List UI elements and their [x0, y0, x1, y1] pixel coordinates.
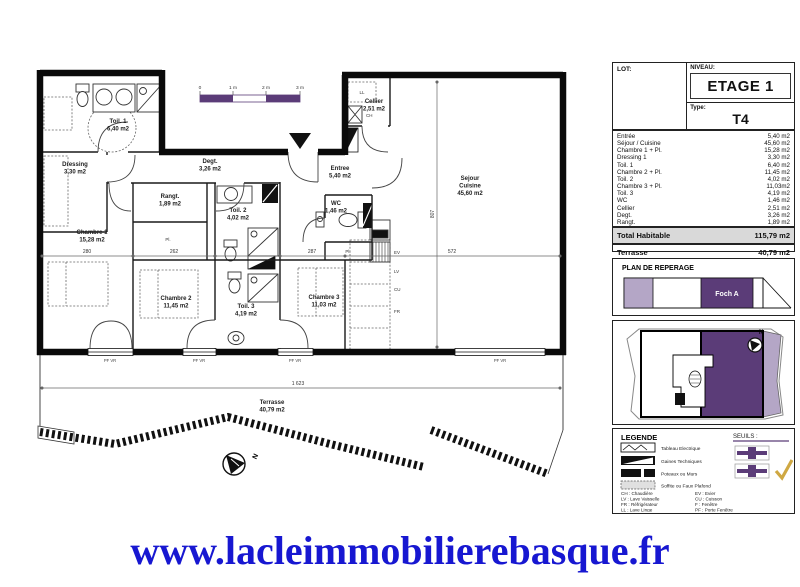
total-label: Total Habitable	[617, 231, 670, 240]
toilet-tank-toil2	[224, 240, 237, 247]
room-row: Rangt.1,89 m2	[617, 219, 790, 226]
label-pfvr-1: PF VR	[104, 358, 116, 363]
room-label-wc: WC	[331, 201, 342, 207]
room-area: 6,40 m2	[768, 162, 790, 169]
abbr-right-0: EV : Evier	[695, 491, 716, 496]
room-row: Dressing 13,30 m2	[617, 154, 790, 161]
abbr-left-2: FR : Réfrigérateur	[621, 502, 658, 507]
site-minimap-panel: N	[612, 320, 795, 425]
legende-abbreviations: CH : Chaudière LV : Lave Vaisselle FR : …	[621, 491, 733, 512]
toilet-toil1	[77, 92, 88, 107]
room-label-degt: Degt.	[203, 159, 218, 165]
room-name: Toil. 2	[617, 176, 633, 183]
room-area: 4,19 m2	[768, 190, 790, 197]
legende-title: LEGENDE	[621, 433, 657, 442]
abbr-left-1: LV : Lave Vaisselle	[621, 497, 660, 502]
room-row: Toil. 24,02 m2	[617, 176, 790, 183]
room-name: Dressing 1	[617, 154, 647, 161]
room-area-rangt: 1,89 m2	[159, 202, 182, 208]
dim-287: 287	[308, 249, 317, 255]
north-compass: N	[223, 452, 259, 475]
niveau-label: NIVEAU:	[690, 65, 715, 71]
room-area: 11,45 m2	[765, 169, 790, 176]
poteaux-murs-icon	[621, 469, 641, 477]
legende-panel: LEGENDE SEUILS : Tableau Electrique Gain…	[612, 428, 795, 514]
room-area: 3,30 m2	[768, 154, 790, 161]
room-area: 1,46 m2	[768, 197, 790, 204]
total-value: 115,79 m2	[755, 231, 790, 240]
room-name: Entrée	[617, 133, 635, 140]
lot-info-panel: LOT: NIVEAU: ETAGE 1 Type: T4 Entrée5,40…	[612, 62, 795, 252]
site-minimap-svg: N	[613, 321, 793, 423]
scale-bar: 0 1 m 2 m 3 m	[199, 85, 304, 102]
seuils-title: SEUILS :	[733, 434, 758, 440]
room-area: 5,40 m2	[768, 133, 790, 140]
room-area-chambre1: 15,28 m2	[79, 238, 105, 244]
label-ev: EV	[394, 250, 400, 255]
plan-de-reperage-panel: PLAN DE REPERAGE Foch A	[612, 258, 795, 316]
room-area-toil2: 4,02 m2	[227, 216, 250, 222]
room-row: Cellier2,51 m2	[617, 205, 790, 212]
type-cell: Type: T4	[687, 103, 794, 129]
room-name: Séjour / Cuisine	[617, 140, 661, 147]
room-name: WC	[617, 197, 627, 204]
abbr-right-2: F : Fenêtre	[695, 502, 718, 507]
room-label-toil2: Toil. 2	[230, 208, 248, 214]
room-label-chambre3: Chambre 3	[308, 295, 340, 301]
outer-walls	[37, 70, 566, 355]
toilet-toil3	[229, 279, 240, 293]
room-area-cellier: 2,51 m2	[363, 107, 386, 113]
abbr-right-1: CU : Cuisson	[695, 497, 723, 502]
toilet-tank-toil3	[228, 272, 241, 279]
label-fr: FR	[394, 309, 401, 314]
soffite-icon	[621, 481, 655, 489]
reperage-title: PLAN DE REPERAGE	[622, 265, 694, 272]
room-row: Chambre 1 + Pl.15,28 m2	[617, 147, 790, 154]
room-row: Toil. 16,40 m2	[617, 162, 790, 169]
scale-1m: 1 m	[229, 85, 237, 91]
legende-svg: LEGENDE SEUILS : Tableau Electrique Gain…	[613, 429, 793, 512]
legende-item-3: Soffite ou Faux Plafond	[661, 484, 711, 490]
scale-0: 0	[199, 85, 202, 91]
room-area-degt: 3,26 m2	[199, 167, 222, 173]
room-name: Chambre 1 + Pl.	[617, 147, 662, 154]
room-row: Chambre 2 + Pl.11,45 m2	[617, 169, 790, 176]
room-label-terrasse: Terrasse	[260, 400, 285, 406]
room-name: Degt.	[617, 212, 632, 219]
dim-280: 280	[83, 249, 92, 255]
abbr-right-3: PF : Porte Fenêtre	[695, 508, 733, 513]
label-pfvr-4: PF VR	[494, 358, 506, 363]
room-row: Chambre 3 + Pl.11,03m2	[617, 183, 790, 190]
label-pl-2: Pl.	[345, 249, 350, 254]
total-habitable-row: Total Habitable 115,79 m2	[613, 226, 794, 245]
room-area-chambre2: 11,45 m2	[163, 304, 189, 310]
bed-chambre2	[140, 270, 198, 318]
terrace	[38, 355, 563, 474]
room-name: Chambre 3 + Pl.	[617, 183, 662, 190]
room-area-wc: 1,46 m2	[325, 209, 348, 215]
abbr-left-0: CH : Chaudière	[621, 491, 653, 496]
room-label-entree: Entree	[331, 166, 350, 172]
room-area: 11,03m2	[766, 183, 790, 190]
room-label-chambre1: Chambre 1	[76, 230, 108, 236]
room-row: WC1,46 m2	[617, 197, 790, 204]
bed-chambre3	[298, 268, 343, 316]
terrasse-value: 40,79 m2	[758, 248, 790, 257]
room-area: 15,28 m2	[764, 147, 790, 154]
room-area: 3,26 m2	[768, 212, 790, 219]
room-name: Toil. 3	[617, 190, 633, 197]
type-value: T4	[690, 111, 791, 127]
legende-icons	[621, 443, 655, 489]
room-surface-list: Entrée5,40 m2 Séjour / Cuisine45,60 m2 C…	[613, 131, 794, 226]
room-name: Cellier	[617, 205, 635, 212]
room-label-toil3: Toil. 3	[238, 304, 256, 310]
room-label-sejour: Sejour	[461, 176, 480, 182]
room-name: Rangt.	[617, 219, 635, 226]
room-area-toil1: 6,40 m2	[107, 127, 130, 133]
room-area: 45,60 m2	[764, 140, 790, 147]
room-name: Chambre 2 + Pl.	[617, 169, 662, 176]
entrance-arrow-icon	[289, 133, 311, 149]
label-pl-1: Pl.	[165, 237, 170, 242]
dim-572: 572	[448, 249, 457, 255]
niveau-value: ETAGE 1	[690, 73, 791, 99]
scale-3m: 3 m	[296, 85, 304, 91]
room-label-dressing: Dressing	[62, 162, 88, 168]
agency-website-link[interactable]: www.lacleimmobilierebasque.fr	[0, 527, 800, 574]
room-row: Toil. 34,19 m2	[617, 190, 790, 197]
bed-chambre1	[48, 262, 108, 306]
room-area-chambre3: 11,03 m2	[311, 303, 337, 309]
label-pfvr-3: PF VR	[289, 358, 301, 363]
lot-header: LOT: NIVEAU: ETAGE 1 Type: T4	[613, 63, 794, 131]
label-lv: LV	[394, 269, 399, 274]
label-ll: LL	[359, 90, 365, 95]
dim-807: 807	[430, 210, 436, 219]
fixture-labels: LL CH EV LV CU FR Pl. Pl.	[165, 90, 400, 314]
north-label: N	[250, 452, 258, 460]
dim-262: 262	[170, 249, 179, 255]
window-labels: PF VR PF VR PF VR PF VR	[104, 358, 506, 363]
toilet-toil2	[225, 247, 236, 261]
toilet-tank-toil1	[76, 84, 89, 92]
foch-a-label: Foch A	[715, 291, 738, 298]
room-label-rangt: Rangt.	[161, 194, 180, 200]
room-area: 1,89 m2	[768, 219, 790, 226]
terrasse-label: Terrasse	[617, 248, 648, 257]
room-row: Entrée5,40 m2	[617, 133, 790, 140]
room-label-cellier: Cellier	[365, 99, 384, 105]
check-icon	[776, 460, 792, 478]
furniture-outlines	[44, 82, 390, 352]
label-cu: CU	[394, 287, 401, 292]
minimap-north-label: N	[759, 330, 763, 336]
seuils-icons	[735, 446, 792, 478]
room-name: Toil. 1	[617, 162, 633, 169]
room-area-toil3: 4,19 m2	[235, 312, 258, 318]
room-area-dressing: 3,30 m2	[64, 170, 87, 176]
room-area-terrasse: 40,79 m2	[259, 408, 285, 414]
legende-item-labels: Tableau Electrique Gaines Techniques Pot…	[661, 446, 711, 490]
niveau-cell: NIVEAU: ETAGE 1	[687, 63, 794, 103]
interior-walls	[40, 78, 390, 352]
abbr-left-3: LL : Lave Linge	[621, 508, 653, 513]
room-area: 4,02 m2	[768, 176, 790, 183]
lot-label: LOT:	[613, 63, 687, 129]
room-label-sejour2: Cuisine	[459, 184, 481, 190]
dim-1623: 1 623	[292, 381, 305, 387]
legende-item-2: Poteaux ou Murs	[661, 472, 698, 478]
legende-item-1: Gaines Techniques	[661, 459, 702, 465]
reperage-svg: PLAN DE REPERAGE Foch A	[613, 259, 793, 314]
room-row: Degt.3,26 m2	[617, 212, 790, 219]
floor-plan-drawing: 0 1 m 2 m 3 m 280 262 287 572 1 623 807 …	[0, 0, 610, 530]
legende-item-0: Tableau Electrique	[661, 446, 701, 452]
label-ch: CH	[366, 113, 373, 118]
room-label-chambre2: Chambre 2	[160, 296, 192, 302]
room-area-sejour: 45,60 m2	[457, 191, 483, 197]
room-label-toil1: Toil. 1	[110, 119, 128, 125]
room-row: Séjour / Cuisine45,60 m2	[617, 140, 790, 147]
scale-2m: 2 m	[262, 85, 270, 91]
room-area: 2,51 m2	[768, 205, 790, 212]
room-area-entree: 5,40 m2	[329, 174, 352, 180]
toilet-wc	[339, 214, 357, 227]
label-pfvr-2: PF VR	[193, 358, 205, 363]
